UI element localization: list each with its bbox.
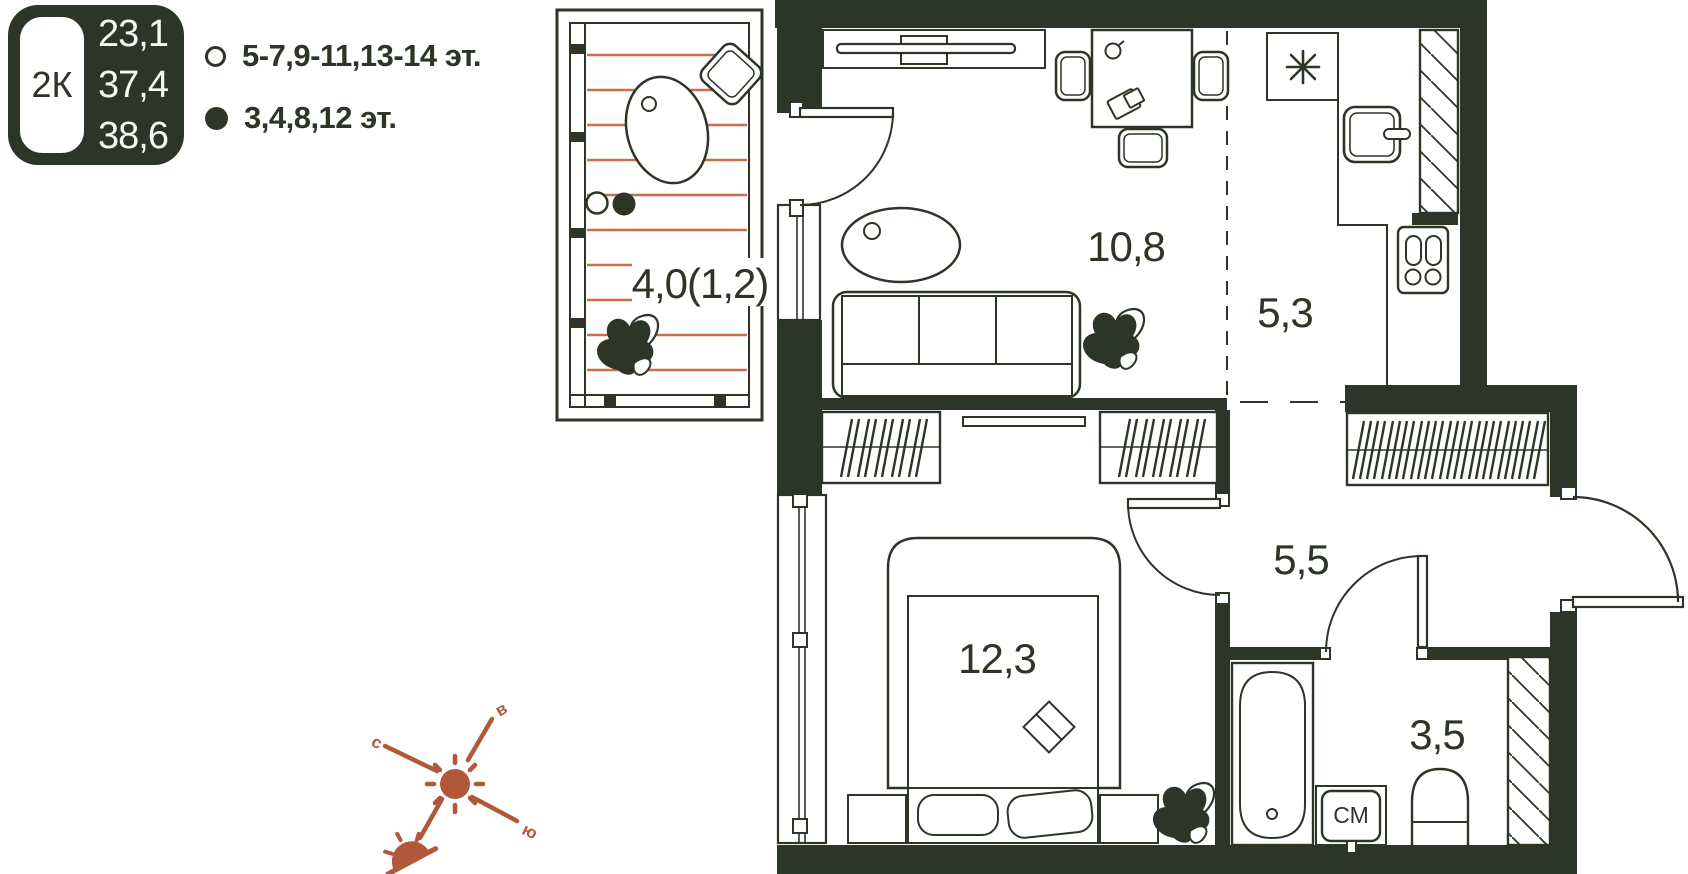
nightstand-icon: [1100, 795, 1158, 843]
fridge-icon: [1267, 33, 1338, 100]
door-swing-arc: [1128, 503, 1220, 595]
bedroom-area-label: 12,3: [958, 635, 1036, 682]
pillow-icon: [1006, 789, 1094, 840]
compass-south-label: ю: [519, 820, 540, 843]
bed-icon: [888, 538, 1120, 843]
vent-shaft-icon: [1508, 657, 1550, 845]
wardrobe-bedroom-right-icon: [1100, 412, 1217, 483]
tv-icon: [837, 44, 1015, 53]
sofa-icon: [833, 292, 1080, 398]
coffee-table-icon: [842, 208, 960, 282]
room-bathroom: СМ 3,5: [1232, 657, 1550, 853]
bathtub-icon: [1232, 663, 1313, 845]
floor-variant-marker-outline: [587, 193, 608, 214]
window-living: [778, 205, 820, 320]
washing-machine-label: СМ: [1333, 802, 1369, 828]
door-bathroom: [1320, 556, 1428, 659]
balcony-area-label: 4,0(1,2): [632, 260, 769, 307]
floor-variant-marker-filled: [613, 193, 636, 216]
plant-icon: [1153, 783, 1214, 843]
bathroom-area-label: 3,5: [1409, 711, 1464, 758]
wardrobe-hall-icon: [1347, 413, 1548, 485]
room-bedroom: 12,3: [822, 412, 1217, 843]
window-bedroom: [778, 494, 826, 843]
toilet-icon: [1412, 769, 1468, 845]
door-bedroom: [1128, 493, 1229, 604]
room-balcony: 4,0(1,2): [557, 10, 768, 420]
plant-icon: [1083, 309, 1144, 369]
compass-east-label: в: [492, 699, 511, 721]
compass-north-label: с: [368, 732, 385, 753]
nightstand-icon: [848, 795, 906, 843]
door-swing-arc: [1573, 497, 1678, 602]
vent-shaft-icon: [1420, 30, 1458, 213]
shelf-icon: [963, 417, 1085, 426]
compass-icon: с в ю: [368, 699, 540, 874]
room-living: 10,8: [823, 30, 1228, 398]
door-entry: [1561, 487, 1683, 612]
stove-icon: [1398, 227, 1448, 293]
sink-icon: [1344, 107, 1410, 162]
pillow-icon: [918, 795, 998, 835]
door-balcony: [790, 102, 893, 216]
sun-icon: [427, 756, 483, 812]
floor-plan-drawing: 4,0(1,2): [0, 0, 1688, 874]
wardrobe-bedroom-left-icon: [822, 412, 940, 483]
room-kitchen: 5,3: [1257, 30, 1458, 385]
door-swing-arc: [1326, 556, 1422, 652]
living-area-label: 10,8: [1087, 223, 1165, 270]
hall-area-label: 5,5: [1273, 536, 1328, 583]
door-swing-arc: [800, 112, 893, 205]
kitchen-area-label: 5,3: [1257, 289, 1312, 336]
faucet-icon: [1384, 129, 1410, 139]
desk-icon: [1092, 30, 1192, 127]
floor-plan-page: 2К 23,1 37,4 38,6 5-7,9-11,13-14 эт. 3,4…: [0, 0, 1688, 874]
